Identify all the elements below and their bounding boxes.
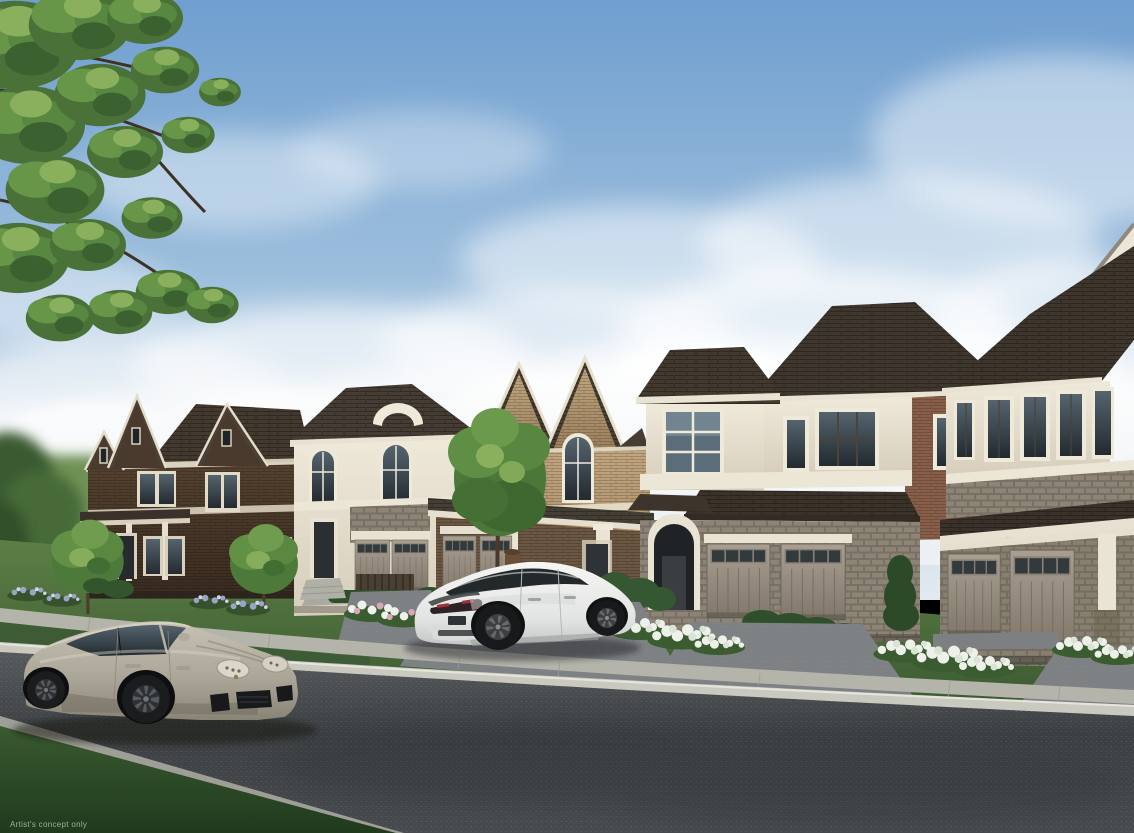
- house-4-tower: [636, 347, 780, 490]
- porsche-front-wheel: [117, 670, 175, 724]
- walkway: [300, 578, 346, 600]
- tesla-license-plate: [448, 616, 466, 625]
- porsche-rear-wheel: [23, 667, 69, 709]
- rendering-root: Artist's concept only: [0, 0, 1134, 833]
- disclaimer-text: Artist's concept only: [10, 820, 87, 829]
- porsche-shadow: [13, 715, 317, 745]
- porsche-mirror: [178, 633, 190, 641]
- house-4-upper-windows: [783, 408, 879, 472]
- porsche-crest: [234, 675, 238, 679]
